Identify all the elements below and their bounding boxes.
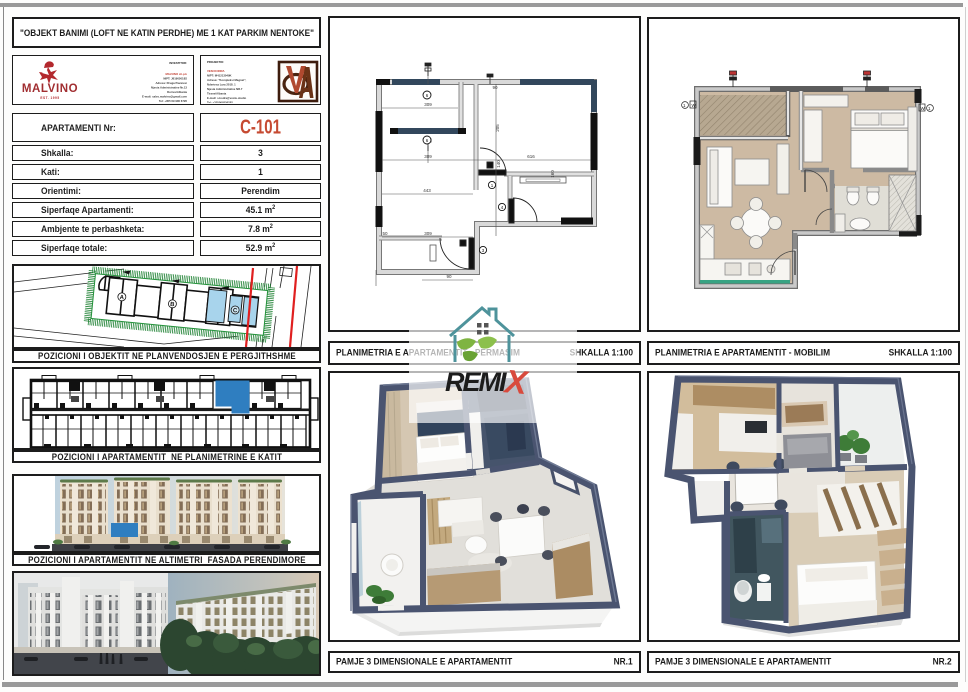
svg-text:1: 1 [683,103,686,108]
svg-text:MALVINO sh.p.k: MALVINO sh.p.k [165,72,187,76]
svg-text:Tirane/Albania: Tirane/Albania [207,92,227,96]
svg-text:Njesia Administrative Nr.13: Njesia Administrative Nr.13 [151,86,187,90]
svg-text:Ndertesa Lyra 2018_1: Ndertesa Lyra 2018_1 [207,83,236,87]
svg-text:E-mail: sales.malvino@gmail.co: E-mail: sales.malvino@gmail.com [142,95,188,99]
svg-text:309: 309 [424,154,432,159]
svg-text:443: 443 [423,188,431,193]
svg-text:NIPT: J61905018S: NIPT: J61905018S [163,77,187,81]
svg-text:NIPT: M41213049K: NIPT: M41213049K [207,74,232,78]
svg-text:309: 309 [424,102,432,107]
svg-text:Tel: +355 69 906 6726: Tel: +355 69 906 6726 [159,99,188,103]
svg-text:Adresa: Rruga Pavaresi: Adresa: Rruga Pavaresi [155,81,187,85]
svg-text:Njesia Administrative NR.7: Njesia Administrative NR.7 [207,87,243,91]
svg-text:140: 140 [496,160,501,168]
svg-text:VENI KODRA: VENI KODRA [207,69,225,73]
svg-text:50: 50 [382,231,388,236]
svg-text:1: 1 [928,106,931,111]
svg-text:EST. 1995: EST. 1995 [40,96,59,100]
svg-text:Durres/Albania: Durres/Albania [167,90,187,94]
svg-text:PROJEKTOI:: PROJEKTOI: [207,60,224,64]
svg-text:Adresa: "Kompleksi Magnet",: Adresa: "Kompleksi Magnet", [207,78,247,82]
svg-text:E-mail: s.kodra@vestu.studio: E-mail: s.kodra@vestu.studio [207,96,247,100]
svg-text:309: 309 [424,231,432,236]
svg-text:Tel: +355069356282: Tel: +355069356282 [207,101,233,104]
svg-text:INVESTITOR:: INVESTITOR: [169,61,187,65]
svg-text:MALVINO: MALVINO [22,83,78,95]
svg-text:90: 90 [446,274,452,279]
svg-text:90: 90 [492,85,498,90]
svg-text:205: 205 [495,124,500,132]
svg-text:616: 616 [527,154,535,159]
svg-text:160: 160 [550,170,555,178]
